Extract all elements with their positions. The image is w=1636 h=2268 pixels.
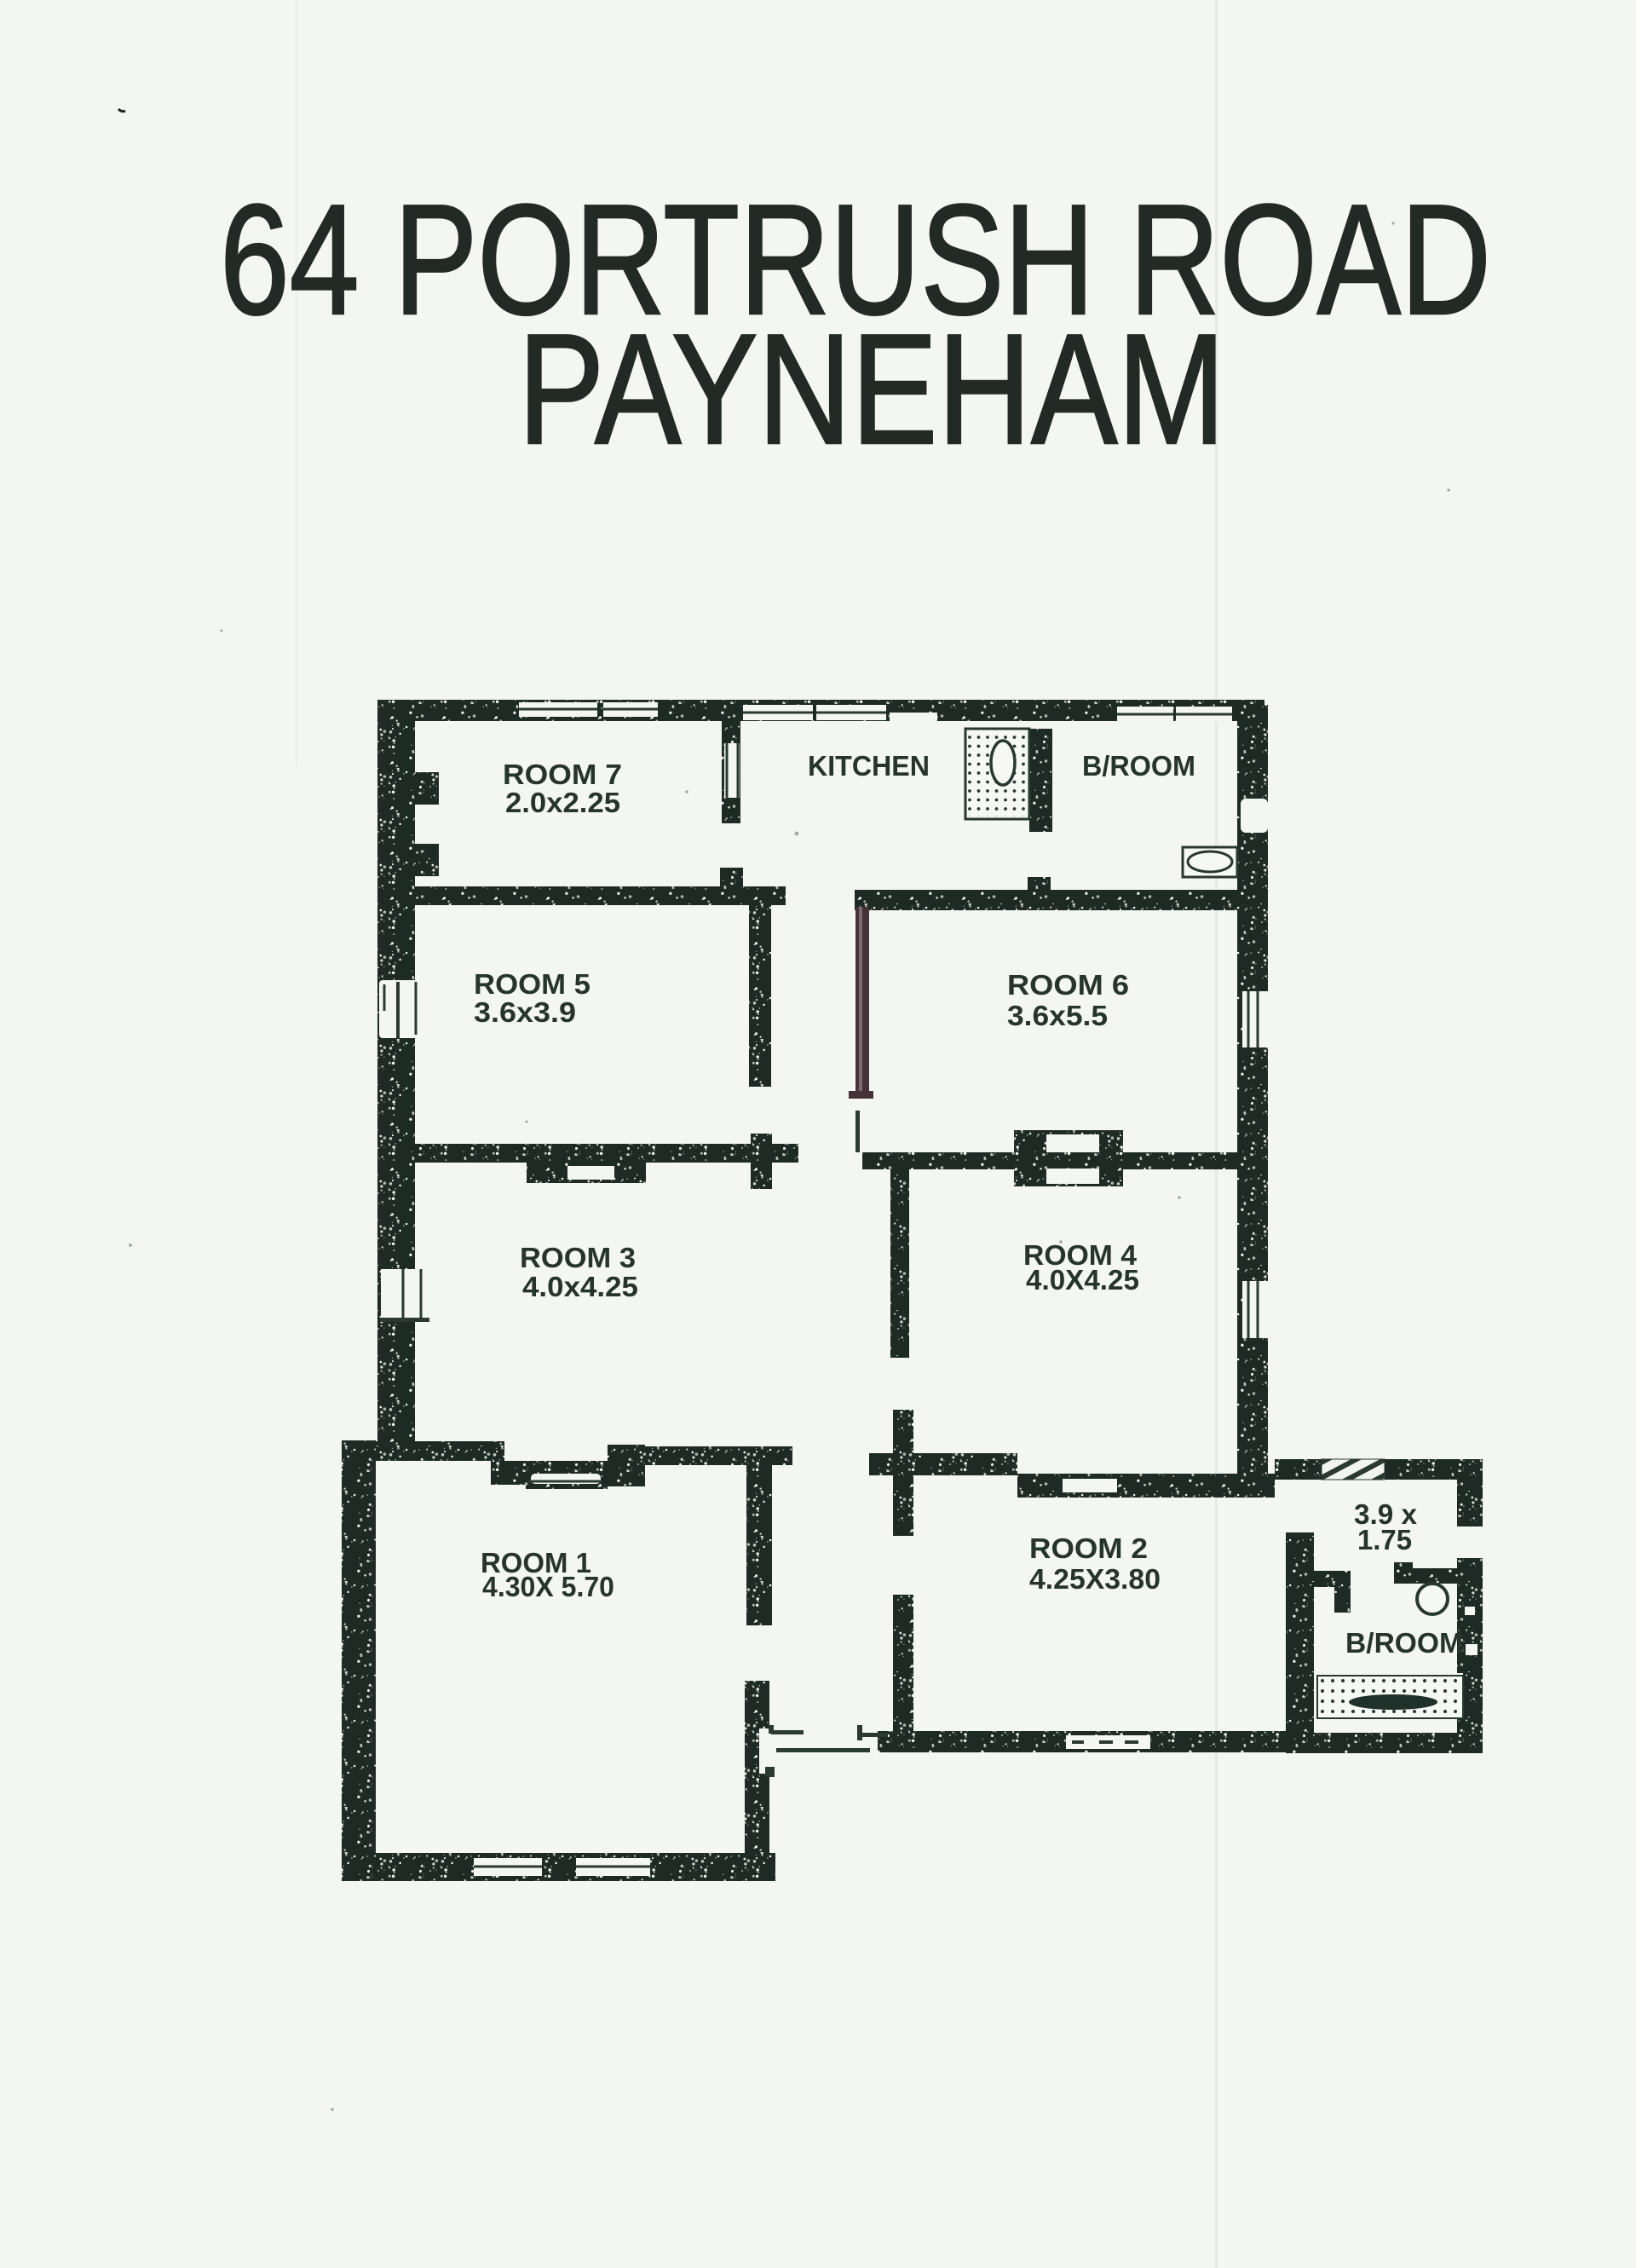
svg-text:4.0x4.25: 4.0x4.25	[522, 1271, 638, 1302]
svg-text:KITCHEN: KITCHEN	[808, 750, 930, 782]
svg-text:PAYNEHAM: PAYNEHAM	[518, 301, 1225, 476]
svg-text:ROOM 7: ROOM 7	[503, 759, 622, 790]
svg-text:ROOM 3: ROOM 3	[520, 1242, 636, 1273]
svg-text:4.30X 5.70: 4.30X 5.70	[482, 1571, 614, 1602]
svg-text:3.6x3.9: 3.6x3.9	[474, 996, 576, 1028]
svg-text:ROOM 5: ROOM 5	[474, 968, 590, 1000]
svg-text:ROOM 6: ROOM 6	[1007, 969, 1129, 1001]
svg-text:ROOM 2: ROOM 2	[1029, 1532, 1148, 1564]
svg-text:4.25X3.80: 4.25X3.80	[1029, 1563, 1161, 1595]
svg-text:2.0x2.25: 2.0x2.25	[505, 787, 620, 818]
svg-text:4.0X4.25: 4.0X4.25	[1026, 1264, 1139, 1296]
svg-text:B/ROOM: B/ROOM	[1082, 750, 1195, 782]
svg-text:3.6x5.5: 3.6x5.5	[1007, 1000, 1108, 1031]
svg-text:B/ROOM: B/ROOM	[1345, 1627, 1463, 1659]
svg-text:1.75: 1.75	[1357, 1524, 1412, 1555]
